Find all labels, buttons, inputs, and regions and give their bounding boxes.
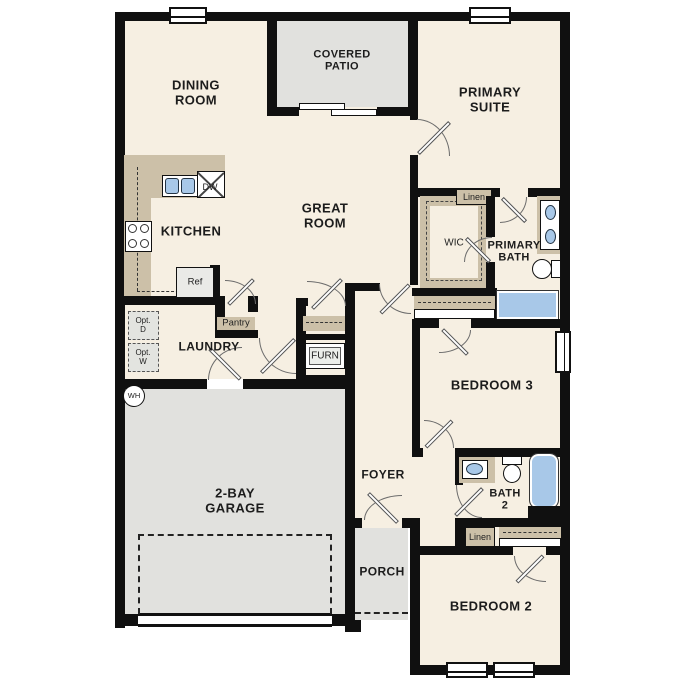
wall-bed2-bottom xyxy=(410,665,570,675)
floor-plan: DININGROOM COVEREDPATIO PRIMARYSUITE KIT… xyxy=(0,0,687,687)
label-bedroom3: BEDROOM 3 xyxy=(451,379,533,394)
wall-bed3-bottom-a xyxy=(412,448,423,457)
label-porch: PORCH xyxy=(359,565,404,578)
window-bedroom2-a xyxy=(446,662,488,678)
bedroom2-door xyxy=(514,556,546,582)
label-pantry: Pantry xyxy=(222,319,249,330)
label-kitchen: KITCHEN xyxy=(161,225,222,240)
label-dining-room: DININGROOM xyxy=(172,78,220,107)
pbath-toilet-tank xyxy=(551,260,561,278)
label-covered-patio: COVEREDPATIO xyxy=(313,49,370,74)
wall-pantry-bottom xyxy=(215,330,258,338)
coat-closet-door xyxy=(307,281,346,306)
wall-patio-bottom-a xyxy=(267,107,299,116)
label-foyer: FOYER xyxy=(361,468,404,481)
wall-closet-left xyxy=(296,298,306,383)
label-opt-dryer: Opt.D xyxy=(135,316,150,334)
bath2-tub xyxy=(530,454,558,508)
wall-bed2-left xyxy=(410,518,420,675)
porch-edge-dashed xyxy=(355,612,408,614)
bed3-closet-rod xyxy=(418,302,491,303)
coat-closet-rod xyxy=(306,322,342,323)
stove-burner-icon xyxy=(128,224,137,233)
wall-bed2-top-a xyxy=(412,546,513,555)
wall-bed3-left xyxy=(412,325,420,448)
wall-closet-right xyxy=(345,283,355,383)
label-linen-lower: Linen xyxy=(469,532,491,542)
stove-burner-icon xyxy=(140,224,149,233)
pbath-sink-1-icon xyxy=(545,205,556,220)
bed3-closet-door xyxy=(439,330,471,353)
hall-door xyxy=(379,284,411,314)
garage-door-opening xyxy=(138,613,332,627)
bed3-closet-doors xyxy=(414,309,495,319)
wall-bed2-top-b xyxy=(546,546,570,555)
label-wic: WIC xyxy=(444,237,463,248)
label-dishwasher: DW xyxy=(203,182,218,192)
label-bath2: BATH2 xyxy=(489,488,520,513)
primary-suite-door xyxy=(417,119,450,156)
label-garage: 2-BAYGARAGE xyxy=(205,486,264,515)
label-primary-bath: PRIMARYBATH xyxy=(487,240,540,265)
bedroom3-door xyxy=(424,420,454,448)
wall-bath2-bottom xyxy=(455,518,570,527)
wall-garage-bottom-right xyxy=(332,614,345,626)
label-water-heater: WH xyxy=(128,392,141,400)
wall-bath2-tub-filler xyxy=(528,506,560,518)
wall-linen2-stub xyxy=(455,527,465,547)
wall-closet-divider xyxy=(296,334,355,340)
window-dining xyxy=(169,7,207,24)
kitchen-sink-basin-2 xyxy=(181,178,195,194)
kitchen-sink-basin-1 xyxy=(165,178,179,194)
front-door xyxy=(364,495,402,520)
sliding-door-panel-b xyxy=(331,109,377,116)
window-bedroom3 xyxy=(555,331,571,373)
window-primary-suite xyxy=(469,7,511,24)
wall-spine-upper xyxy=(410,155,418,285)
wall-bed3-top-b xyxy=(471,319,570,328)
wall-garage-bottom-left xyxy=(115,614,138,626)
label-furnace: FURN xyxy=(311,350,339,361)
wall-left xyxy=(115,12,125,628)
stove-burner-icon xyxy=(128,239,137,248)
bath2-toilet-icon xyxy=(503,464,521,483)
wall-closet-bottom xyxy=(296,375,355,383)
wall-patio-left xyxy=(267,12,277,116)
label-bedroom2: BEDROOM 2 xyxy=(450,600,532,615)
pantry-door xyxy=(225,280,256,304)
wall-corridor-top xyxy=(352,283,380,291)
primary-bath-door xyxy=(500,197,527,223)
label-refrigerator: Ref xyxy=(188,278,203,289)
wall-patio-right xyxy=(408,12,418,116)
bath2-door xyxy=(456,485,482,518)
pbath-shower xyxy=(497,291,558,319)
window-bedroom2-b xyxy=(493,662,535,678)
bed2-closet-rod xyxy=(503,532,557,533)
wall-below-wic xyxy=(412,288,495,296)
pbath-sink-2-icon xyxy=(545,229,556,244)
laundry-door xyxy=(259,338,296,374)
bath2-sink-icon xyxy=(466,463,483,475)
garage-door-dashed xyxy=(138,534,332,614)
wall-garage-right xyxy=(345,379,355,528)
label-laundry: LAUNDRY xyxy=(178,340,239,353)
label-linen-upper: Linen xyxy=(463,192,485,202)
label-primary-suite: PRIMARYSUITE xyxy=(459,85,521,114)
label-great-room: GREATROOM xyxy=(302,201,349,230)
wall-wic-right-a xyxy=(486,196,495,237)
coat-closet-shelf xyxy=(303,316,345,331)
wall-front-b xyxy=(402,518,412,528)
wall-porch-left xyxy=(345,518,355,632)
stove-burner-icon xyxy=(140,239,149,248)
label-opt-washer: Opt.W xyxy=(135,348,150,366)
wall-porch-corner xyxy=(345,620,361,632)
